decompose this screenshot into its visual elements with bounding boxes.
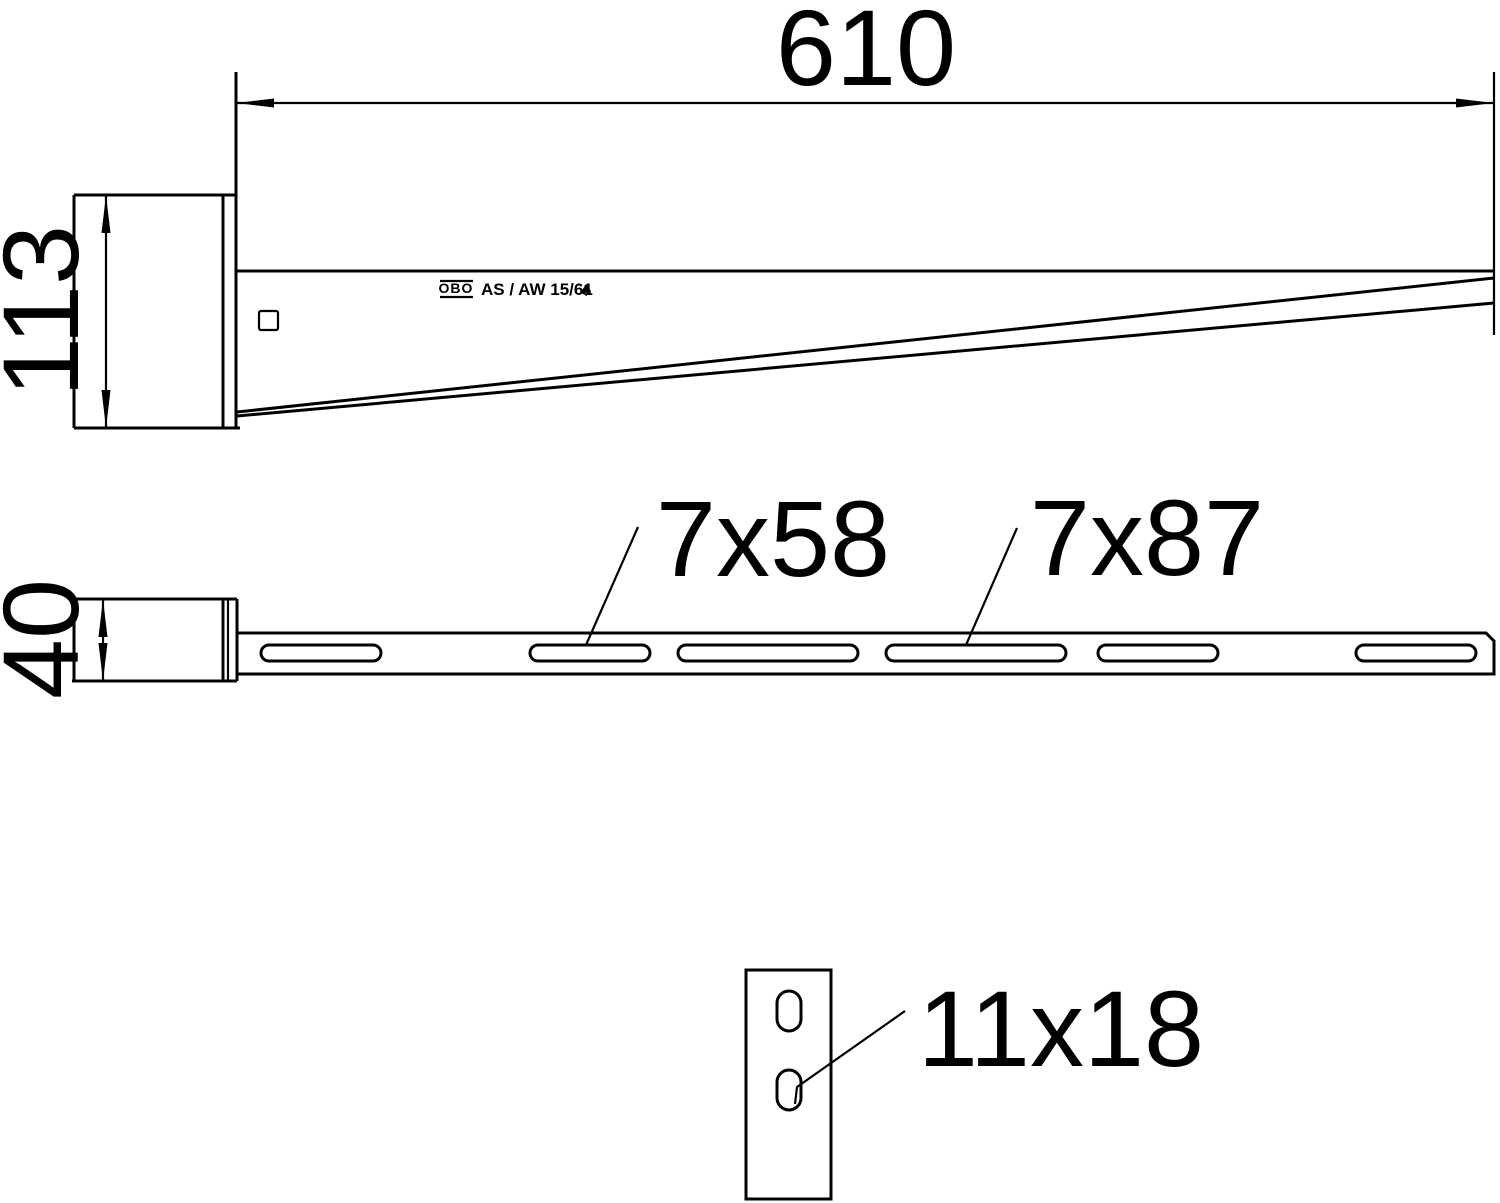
plan-view-slots [261, 645, 1476, 661]
plan-view: 40 7x58 7x87 [0, 477, 1494, 699]
dimension-height: 113 [0, 195, 111, 428]
slot-callout-small: 7x58 [586, 478, 890, 645]
slot-large-label: 7x87 [1030, 477, 1264, 598]
arm-slot-4 [886, 645, 1066, 661]
bracket-dimension-drawing: OBO AS / AW 15/61 ♠ 610 113 [0, 0, 1500, 1203]
arm-slot-5 [1098, 645, 1218, 661]
arm-slot-1 [261, 645, 381, 661]
plan-view-arm-band [237, 633, 1494, 674]
slot-large-leader-line [966, 528, 1017, 645]
product-stamp-text: AS / AW 15/61 [481, 280, 593, 299]
end-plate-outline [746, 970, 831, 1199]
end-plate-view: 11x18 [746, 968, 1204, 1199]
side-view-taper-upper-edge [237, 278, 1494, 412]
product-stamp: OBO AS / AW 15/61 ♠ [439, 280, 594, 300]
dim-length-arrow-right [1456, 99, 1494, 108]
end-plate-hole-callout: 11x18 [795, 968, 1204, 1104]
side-view-square-hole [259, 311, 278, 330]
end-plate-hole-leader-line [795, 1011, 905, 1104]
side-view-taper-lower-edge [237, 303, 1494, 416]
dimension-width: 40 [0, 579, 108, 699]
brand-logo-text: OBO [439, 280, 474, 296]
slot-callout-large: 7x87 [966, 477, 1264, 645]
dim-length-arrow-left [236, 99, 274, 108]
slot-small-label: 7x58 [656, 478, 890, 599]
dim-height-label: 113 [0, 225, 101, 397]
dim-height-arrow-top [102, 195, 111, 233]
end-plate-hole-label: 11x18 [918, 968, 1204, 1089]
slot-small-leader-line [586, 527, 638, 645]
arm-slot-6 [1356, 645, 1476, 661]
arm-slot-2 [530, 645, 650, 661]
dim-height-arrow-bottom [102, 390, 111, 428]
dimension-length: 610 [236, 0, 1494, 108]
arm-slot-3 [678, 645, 858, 661]
certification-mark-icon: ♠ [579, 281, 593, 300]
side-view: OBO AS / AW 15/61 ♠ 610 113 [0, 0, 1494, 428]
drawing-canvas: OBO AS / AW 15/61 ♠ 610 113 [0, 0, 1500, 1203]
dim-length-label: 610 [776, 0, 956, 108]
end-plate-hole-top [777, 991, 801, 1031]
dim-width-label: 40 [0, 579, 101, 699]
